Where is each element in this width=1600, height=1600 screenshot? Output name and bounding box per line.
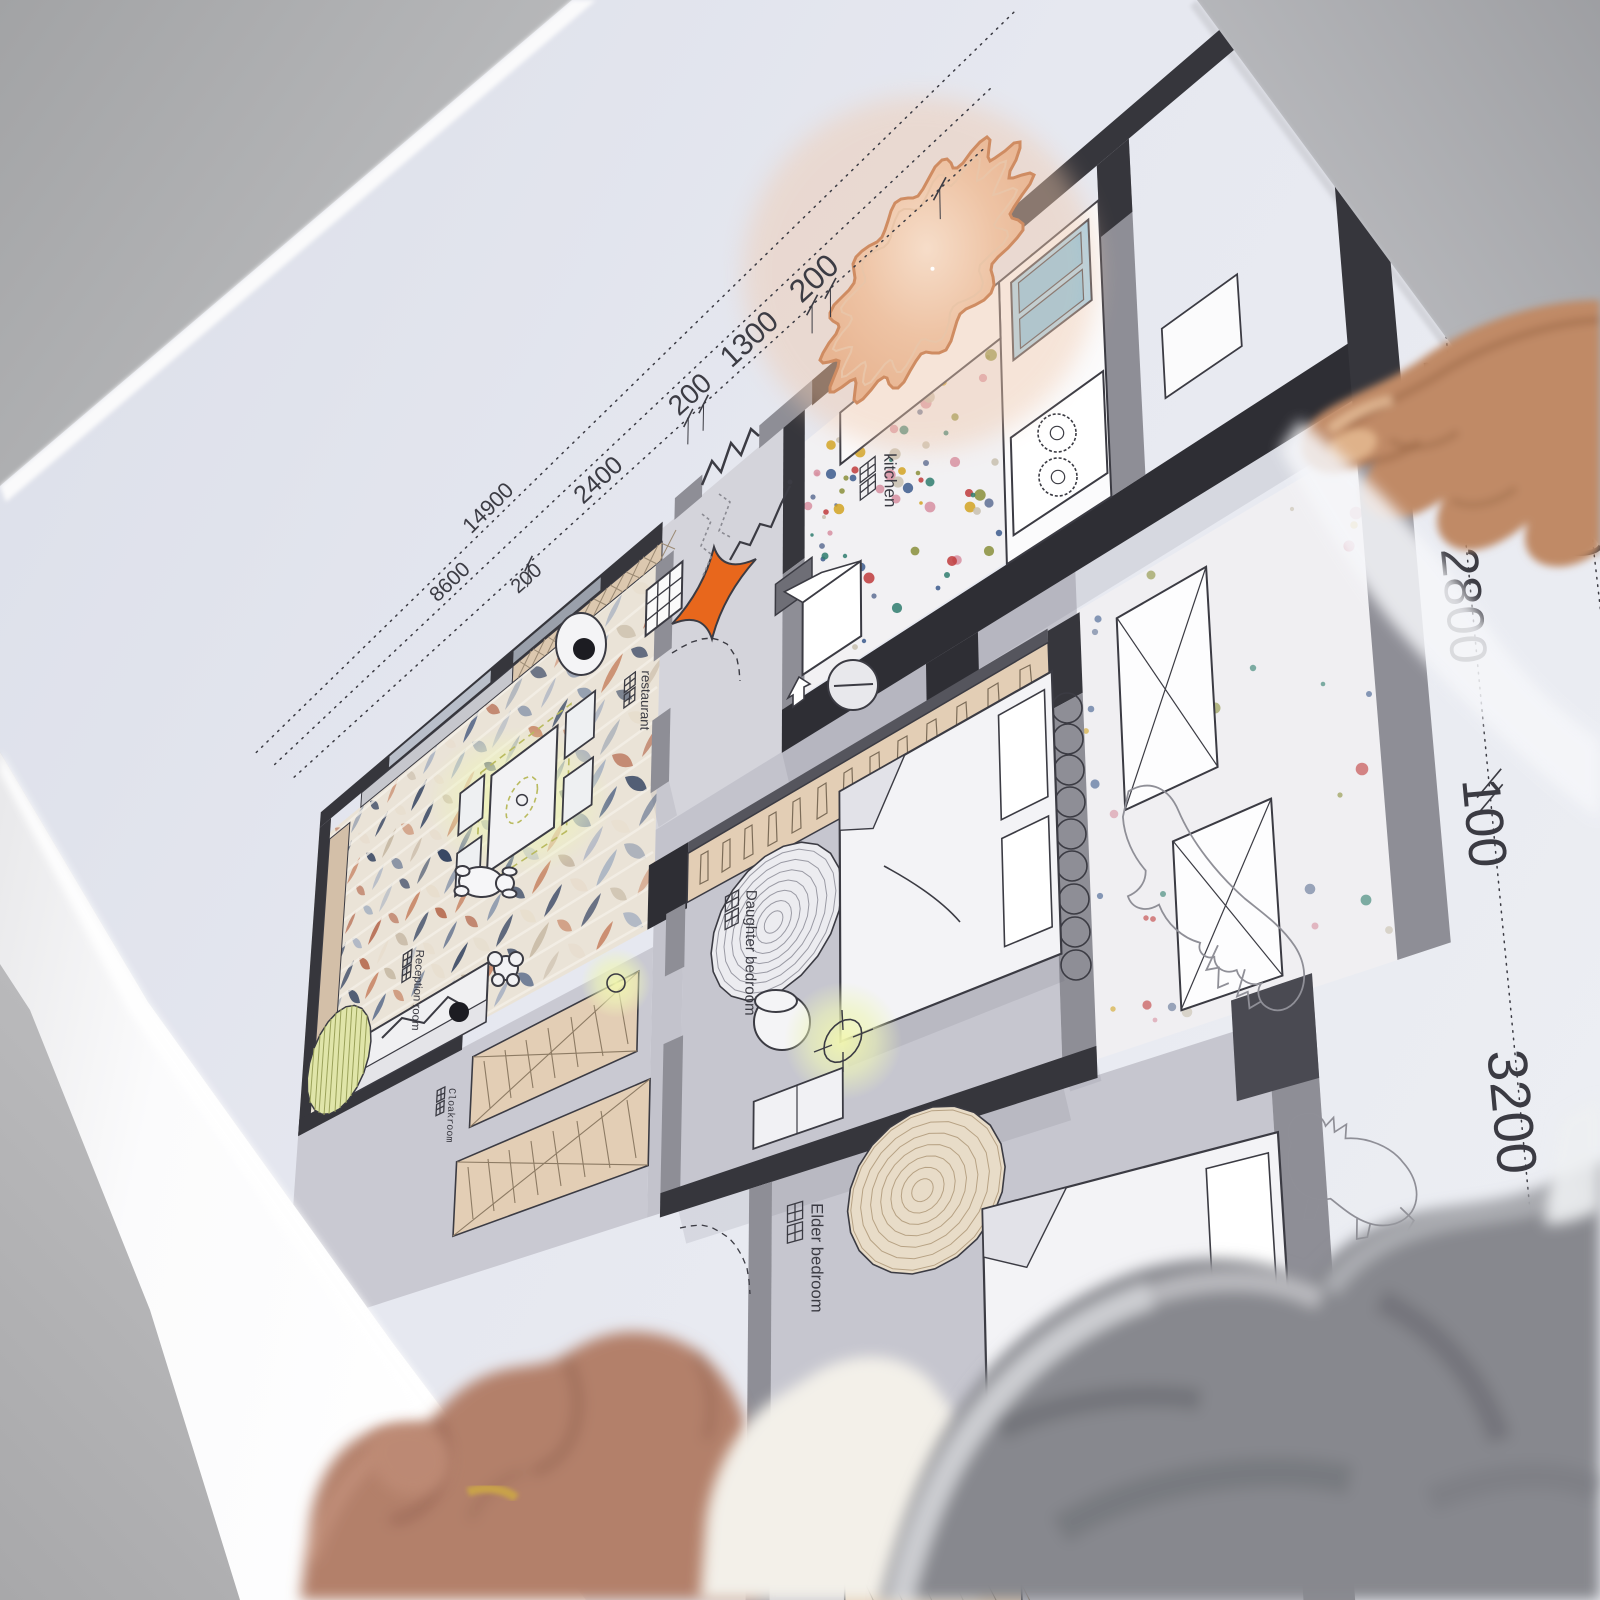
svg-text:Daughter bedroom: Daughter bedroom — [741, 890, 759, 1016]
svg-text:kitchen: kitchen — [880, 453, 900, 507]
svg-text:3200: 3200 — [1475, 1047, 1549, 1177]
svg-text:restaurant: restaurant — [637, 670, 653, 731]
svg-text:Elder bedroom: Elder bedroom — [808, 1203, 827, 1312]
svg-text:100: 100 — [1450, 775, 1518, 870]
